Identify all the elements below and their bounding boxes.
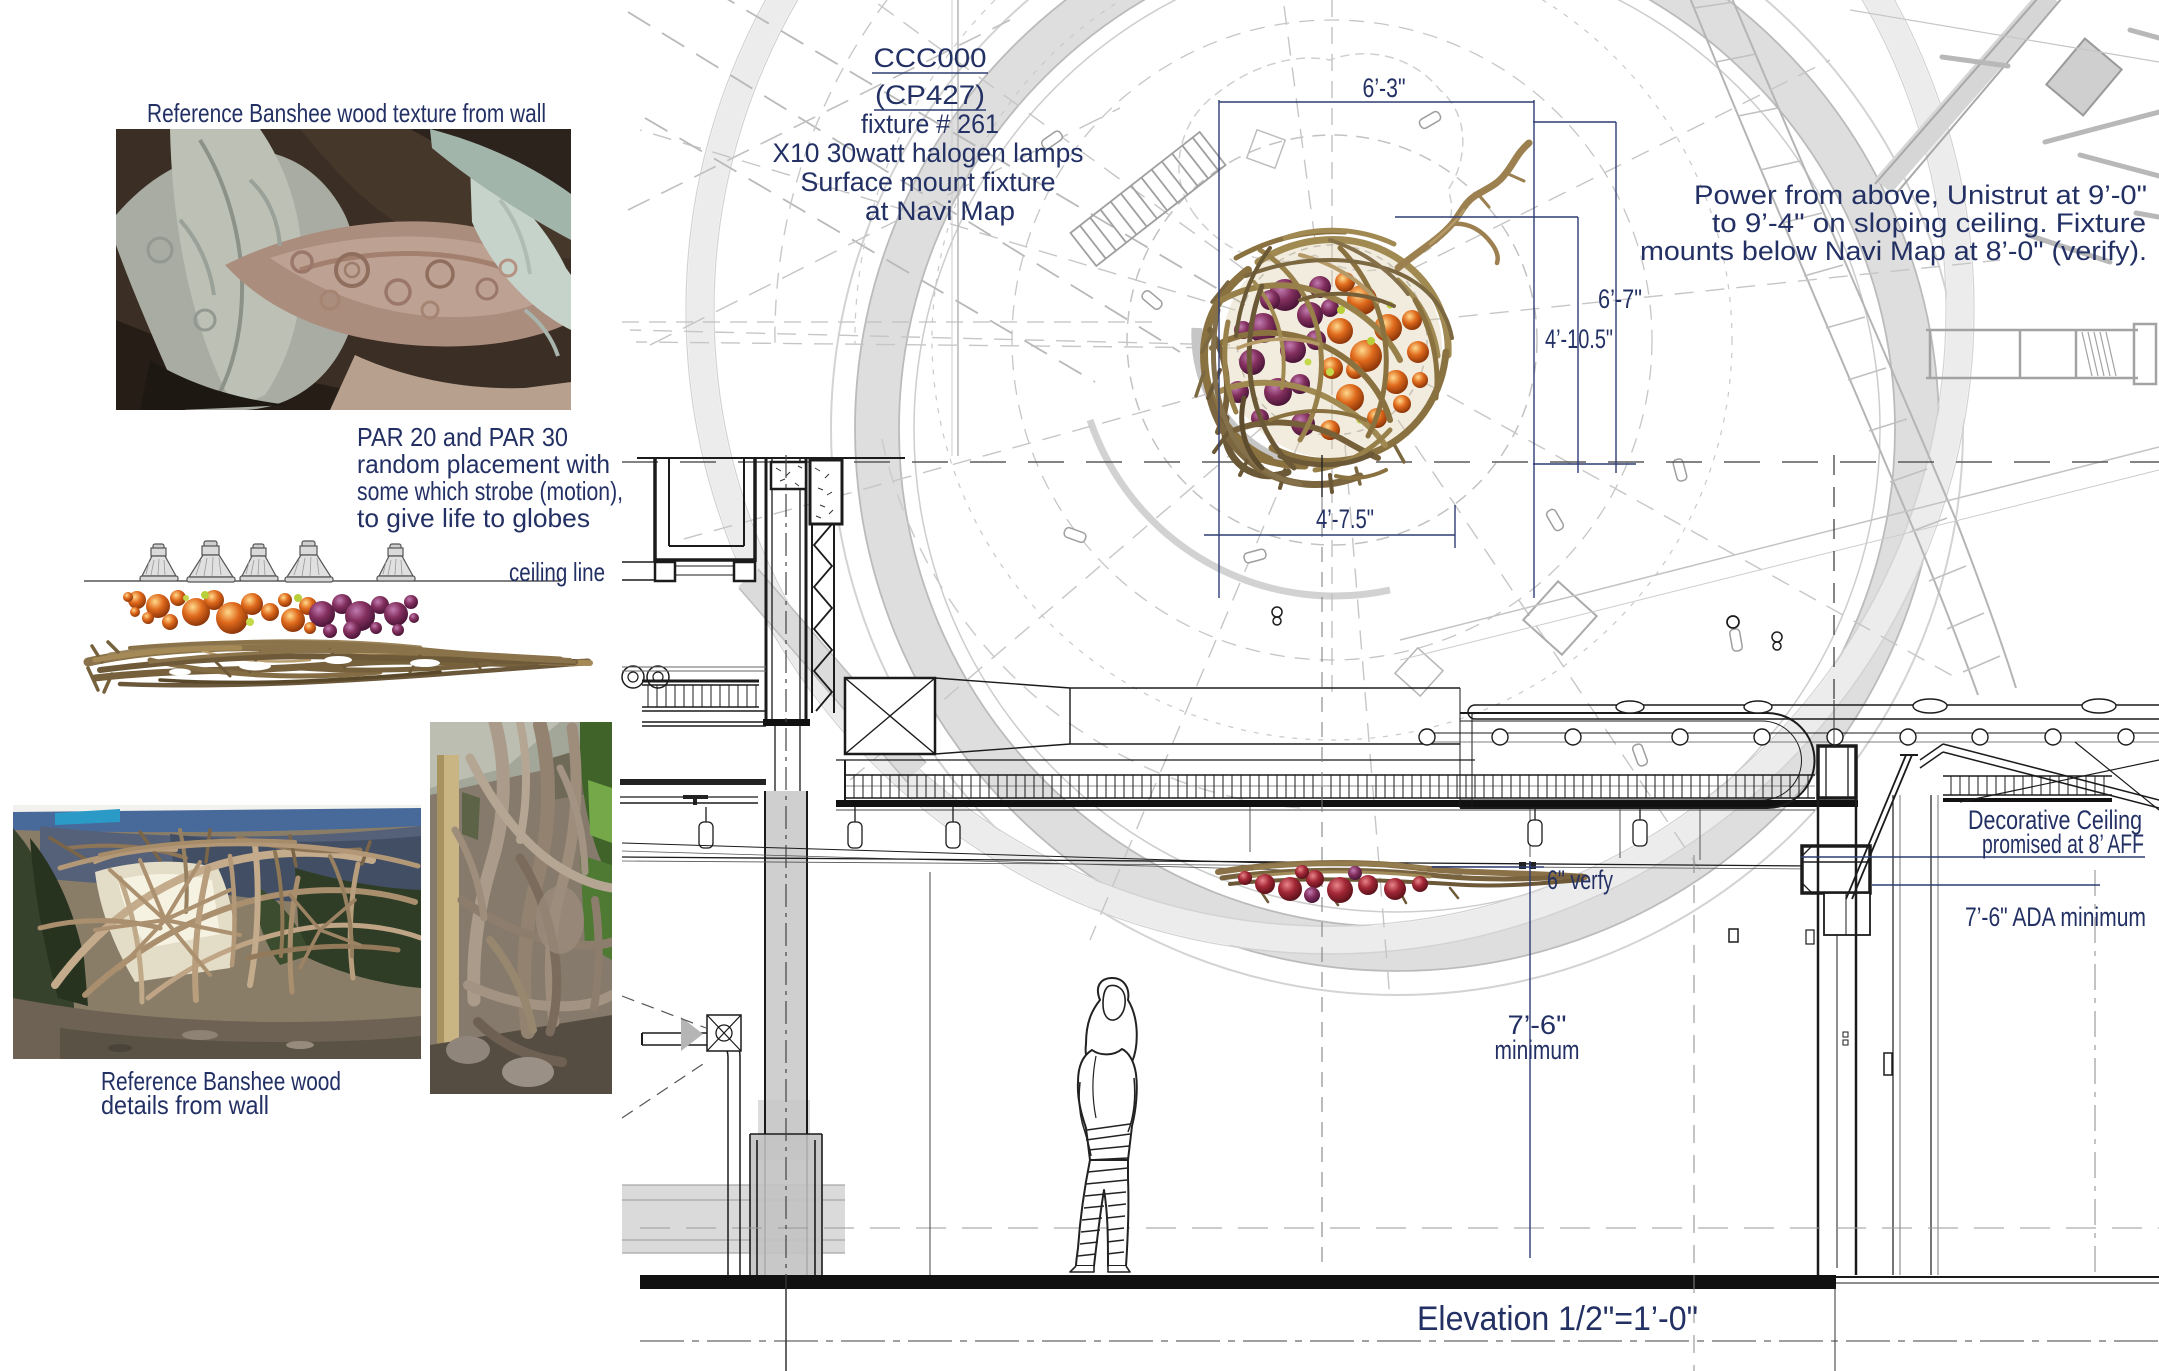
svg-text:fixture # 261: fixture # 261 <box>861 109 999 139</box>
svg-text:CCC000: CCC000 <box>874 43 987 73</box>
svg-text:to give life to globes: to give life to globes <box>357 503 590 533</box>
svg-text:X10 30watt halogen lamps: X10 30watt halogen lamps <box>773 138 1084 168</box>
svg-text:ceiling line: ceiling line <box>509 557 605 587</box>
svg-text:4’-10.5": 4’-10.5" <box>1545 324 1613 354</box>
svg-text:Elevation 1/2"=1’-0": Elevation 1/2"=1’-0" <box>1417 1300 1698 1338</box>
svg-text:some which strobe (motion),: some which strobe (motion), <box>357 476 623 506</box>
svg-text:at Navi Map: at Navi Map <box>865 196 1015 226</box>
svg-text:Reference Banshee wood texture: Reference Banshee wood texture from wall <box>147 98 546 128</box>
svg-text:4’-7.5": 4’-7.5" <box>1316 504 1374 534</box>
svg-text:minimum: minimum <box>1495 1035 1580 1065</box>
svg-text:6’-7": 6’-7" <box>1598 284 1642 314</box>
svg-text:6" verfy: 6" verfy <box>1547 865 1613 895</box>
svg-text:7’-6" ADA minimum: 7’-6" ADA minimum <box>1965 902 2146 932</box>
svg-text:Power from above, Unistrut at: Power from above, Unistrut at 9’-0" <box>1694 180 2147 210</box>
svg-text:mounts below Navi Map at 8’-0": mounts below Navi Map at 8’-0" (verify). <box>1640 236 2147 266</box>
svg-text:Surface mount fixture: Surface mount fixture <box>801 167 1056 197</box>
svg-text:6’-3": 6’-3" <box>1363 73 1406 103</box>
svg-text:details from wall: details from wall <box>101 1090 269 1120</box>
svg-text:random placement with: random placement with <box>357 449 610 479</box>
svg-text:PAR 20 and PAR 30: PAR 20 and PAR 30 <box>357 422 568 452</box>
svg-text:promised at 8’ AFF: promised at 8’ AFF <box>1982 829 2144 859</box>
svg-text:to 9’-4" on sloping ceiling. F: to 9’-4" on sloping ceiling. Fixture <box>1712 208 2146 238</box>
svg-text:(CP427): (CP427) <box>875 80 985 110</box>
